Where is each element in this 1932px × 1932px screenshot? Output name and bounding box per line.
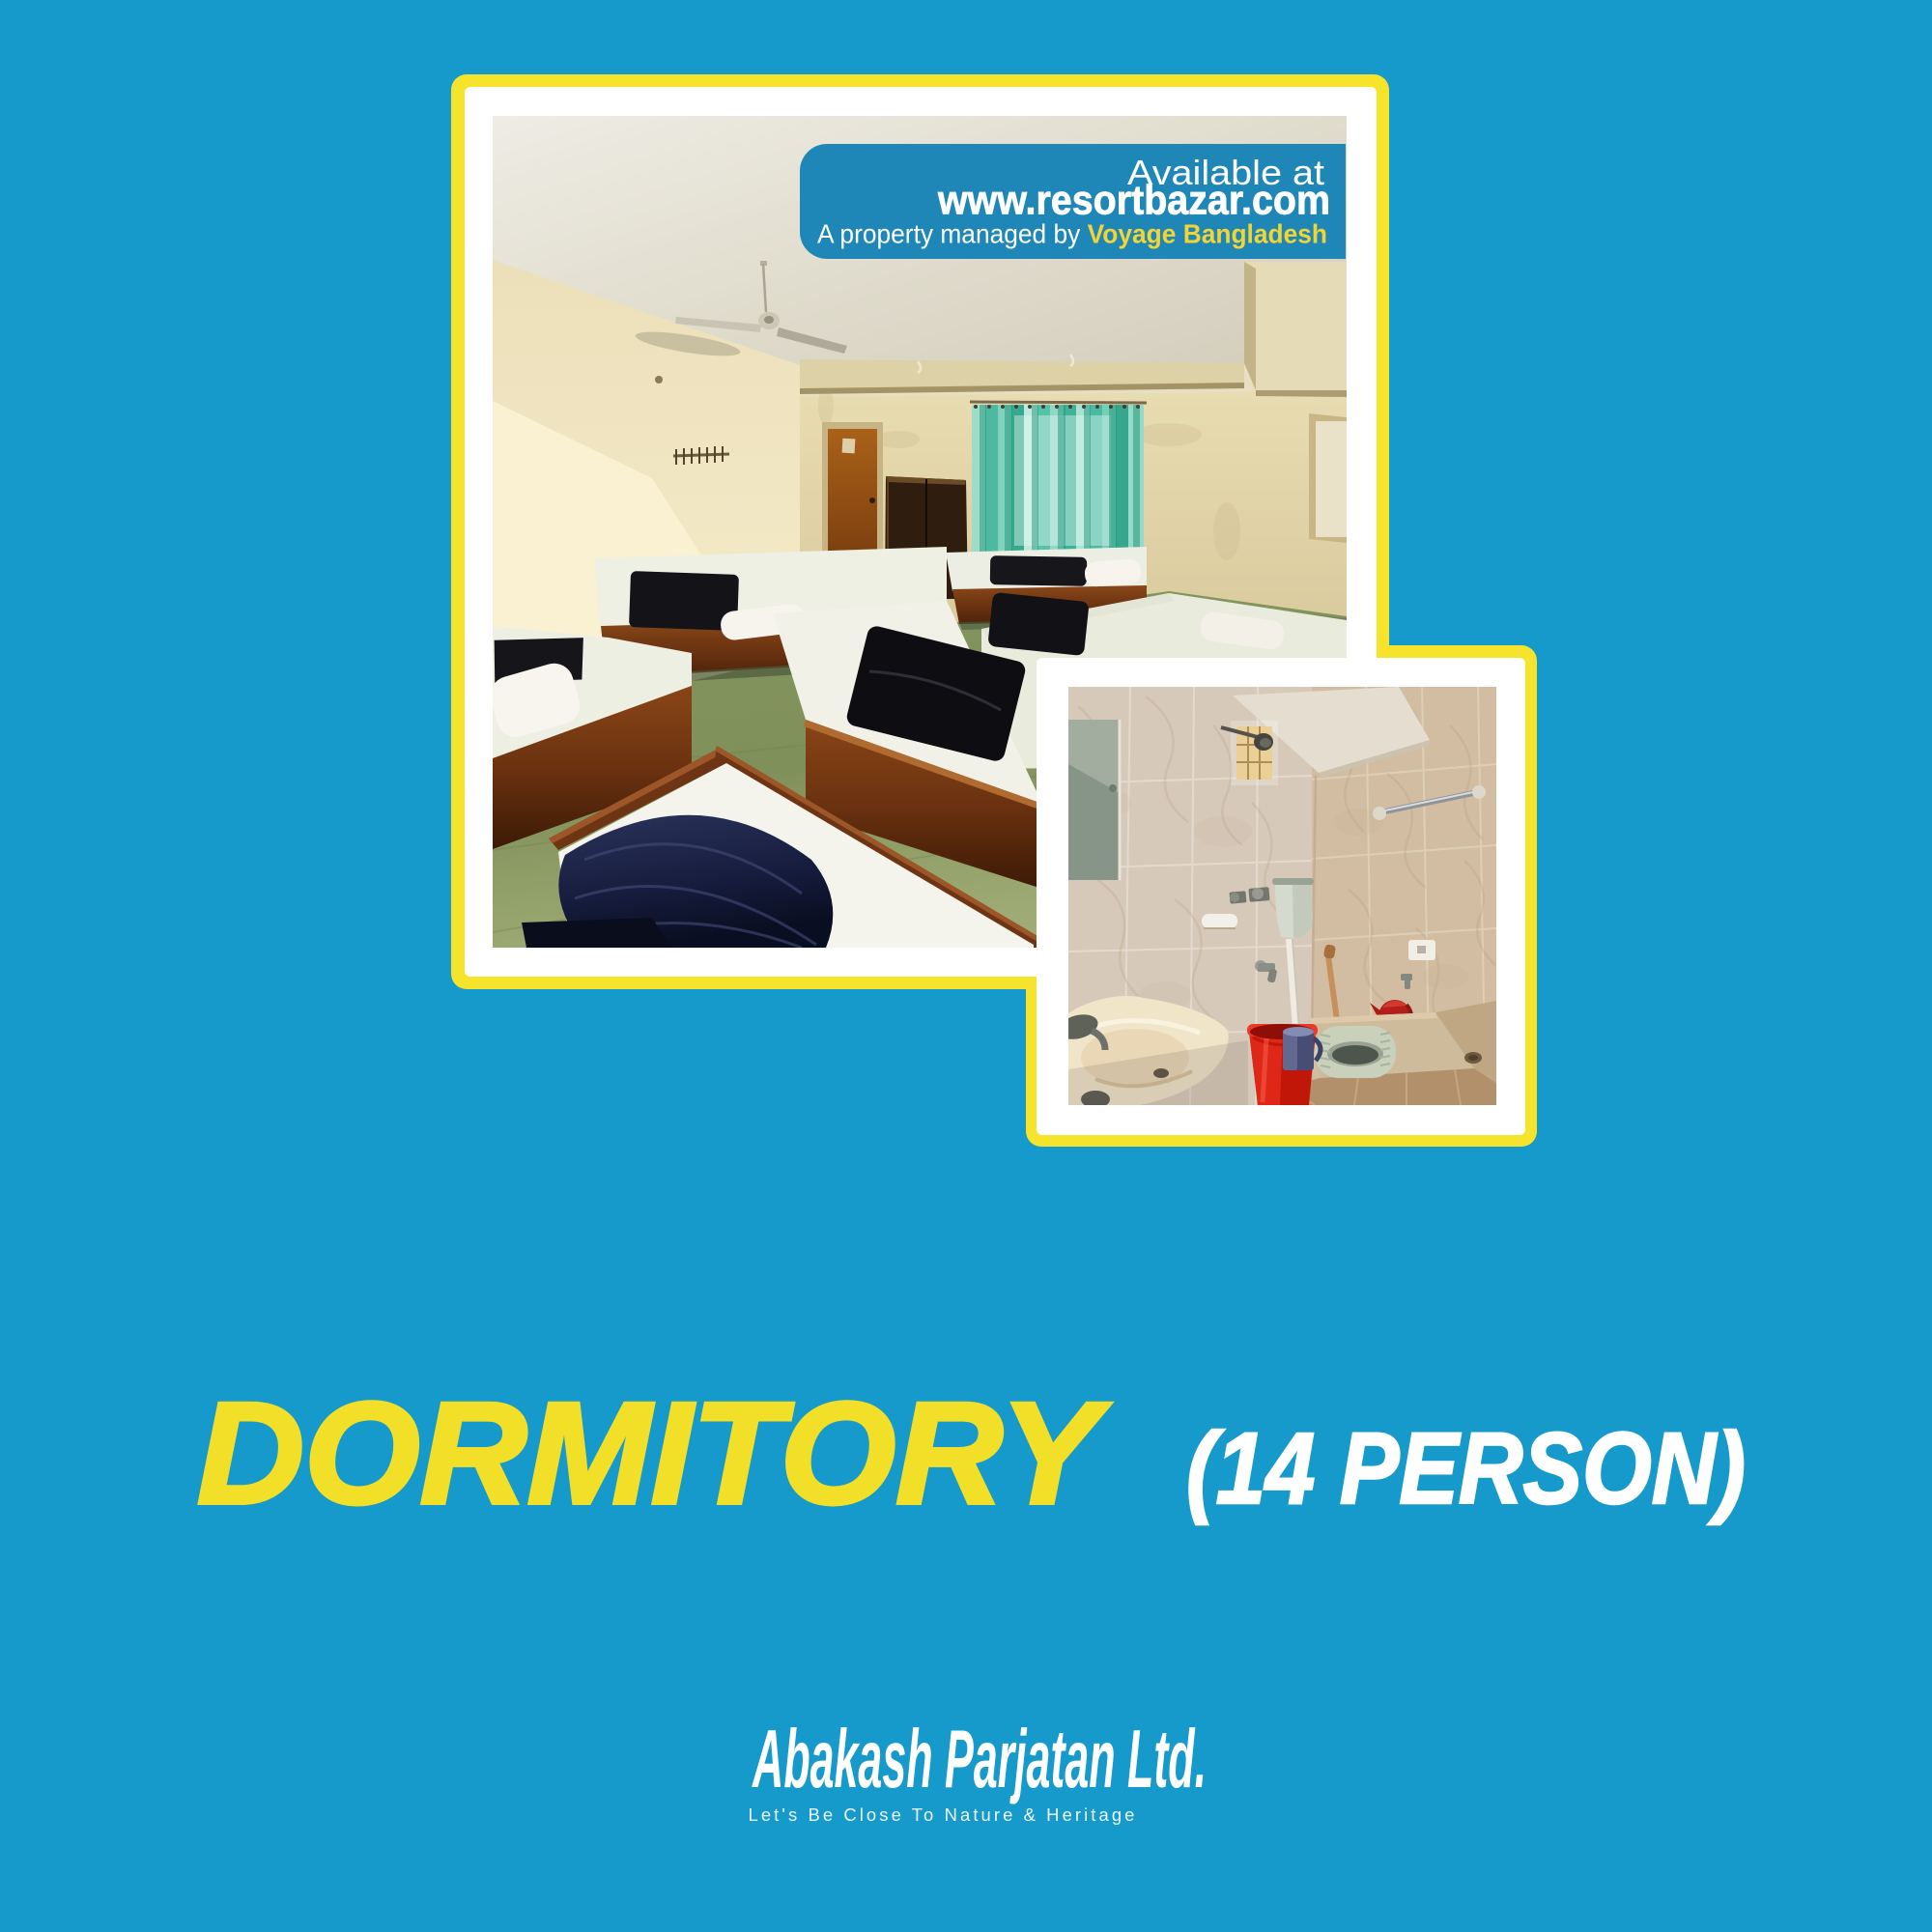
svg-text:DORMITORY: DORMITORY <box>197 1372 1111 1534</box>
svg-text:Let's Be Close To Nature & He: Let's Be Close To Nature & Heritage <box>749 1805 1138 1825</box>
svg-text:www.resortbazar.com: www.resortbazar.com <box>937 178 1330 224</box>
svg-text:Abakash Parjatan Ltd.: Abakash Parjatan Ltd. <box>752 1714 1207 1805</box>
svg-text:A property managed by Voyage B: A property managed by Voyage Bangladesh <box>817 219 1327 249</box>
svg-text:(14 PERSON): (14 PERSON) <box>1186 1412 1746 1525</box>
